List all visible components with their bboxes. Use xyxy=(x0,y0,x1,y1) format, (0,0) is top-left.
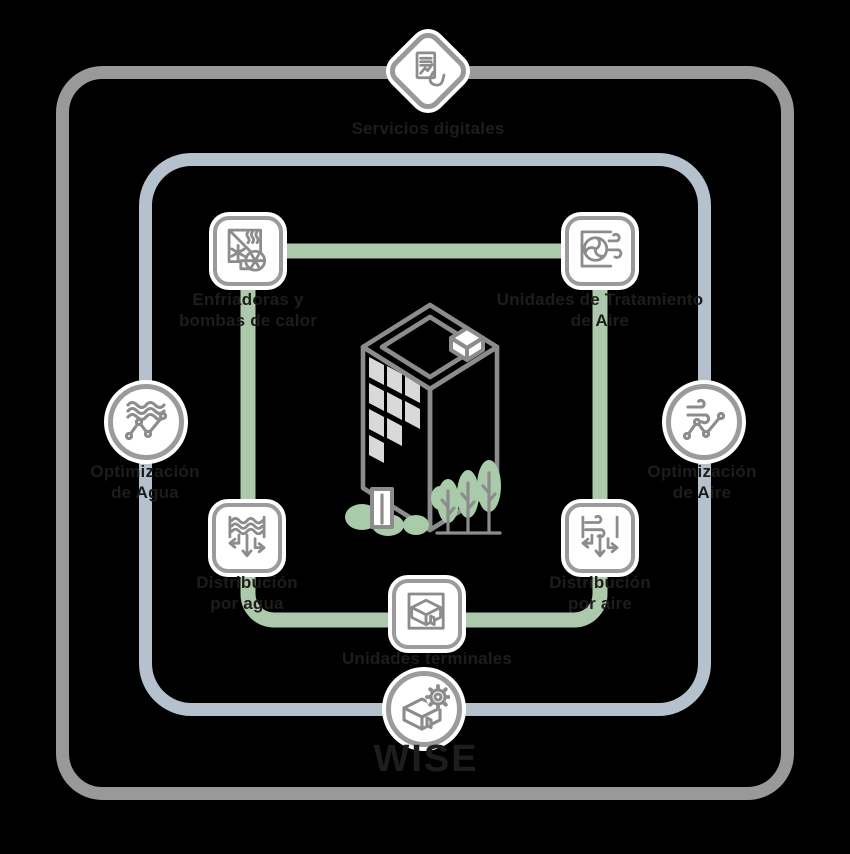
label-text: Unidades terminales xyxy=(257,648,597,669)
label-air-optimization: Optimización de Aire xyxy=(532,461,850,503)
label-chillers: Enfriadoras y bombas de calor xyxy=(78,289,418,331)
label-text: bombas de calor xyxy=(78,310,418,331)
label-text: Optimización xyxy=(532,461,850,482)
trees xyxy=(437,460,501,533)
label-text: de Aire xyxy=(532,482,850,503)
building-illustration xyxy=(340,295,540,545)
wise-room-gear-icon xyxy=(398,681,450,738)
label-text: de Aire xyxy=(430,310,770,331)
label-text: por aire xyxy=(430,593,770,614)
label-wise: WISE xyxy=(256,740,596,778)
chiller-heatpump-icon xyxy=(221,222,275,281)
label-text: de Agua xyxy=(0,482,315,503)
air-handling-node xyxy=(565,216,635,286)
air-optimization-node xyxy=(666,384,742,460)
label-text: Distribución xyxy=(77,572,417,593)
air-distribution-icon xyxy=(573,509,627,568)
label-air-distribution: Distribución por aire xyxy=(430,572,770,614)
chillers-node xyxy=(213,216,283,286)
water-distribution-icon xyxy=(220,509,274,568)
air-optimization-icon xyxy=(678,394,730,451)
rooftop-unit xyxy=(451,328,483,360)
label-air-handling: Unidades de Tratamiento de Aire xyxy=(430,289,770,331)
air-distribution-node xyxy=(565,503,635,573)
entrance-door xyxy=(372,489,392,527)
water-optimization-node xyxy=(108,384,184,460)
wise-system-diagram: Servicios digitales Enfriadoras y bombas… xyxy=(0,0,850,854)
label-text: Distribución xyxy=(430,572,770,593)
label-digital-services: Servicios digitales xyxy=(258,118,598,139)
label-text: Servicios digitales xyxy=(258,118,598,139)
document-hand-icon xyxy=(405,46,451,97)
label-text: por agua xyxy=(77,593,417,614)
label-text: Enfriadoras y xyxy=(78,289,418,310)
label-water-optimization: Optimización de Agua xyxy=(0,461,315,503)
air-handling-unit-icon xyxy=(573,222,627,281)
label-text: Optimización xyxy=(0,461,315,482)
water-optimization-icon xyxy=(120,394,172,451)
label-water-distribution: Distribución por agua xyxy=(77,572,417,614)
water-distribution-node xyxy=(212,503,282,573)
label-text: Unidades de Tratamiento xyxy=(430,289,770,310)
label-text: WISE xyxy=(256,740,596,778)
label-terminal-units: Unidades terminales xyxy=(257,648,597,669)
wise-node xyxy=(386,671,462,747)
building-windows xyxy=(369,357,420,463)
